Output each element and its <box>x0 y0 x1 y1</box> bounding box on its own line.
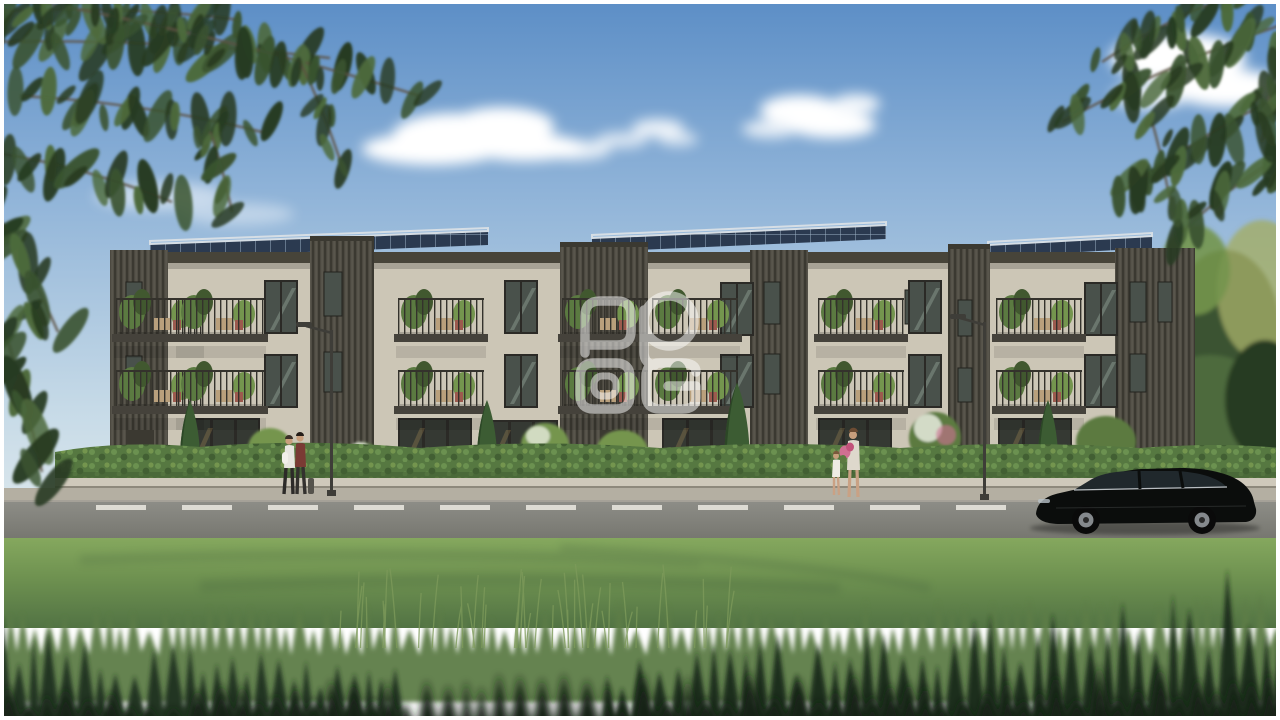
scene-canvas <box>0 0 1280 720</box>
headlight <box>1038 499 1050 503</box>
roof-fascia <box>110 252 1195 263</box>
bollard <box>308 478 314 494</box>
architectural-rendering <box>0 0 1280 720</box>
